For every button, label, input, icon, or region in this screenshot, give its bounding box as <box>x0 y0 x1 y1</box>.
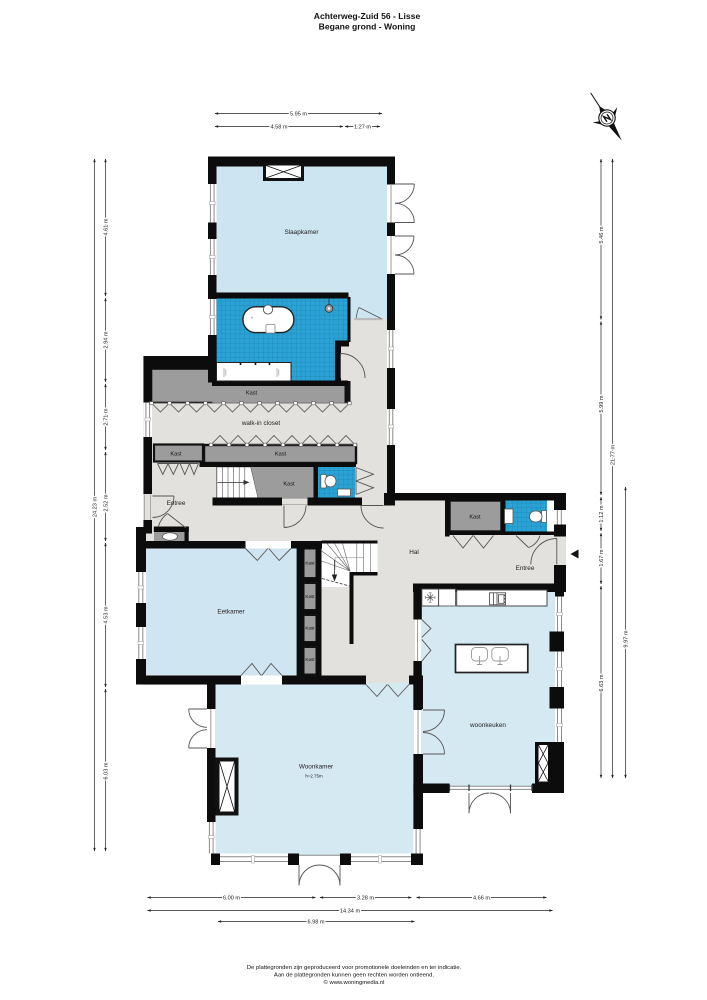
svg-text:Achterweg-Zuid 56 - Lisse: Achterweg-Zuid 56 - Lisse <box>314 11 421 21</box>
svg-text:Kast: Kast <box>305 561 315 566</box>
svg-text:4.66 m: 4.66 m <box>473 896 490 902</box>
svg-text:Kast: Kast <box>275 452 287 458</box>
svg-text:6.98 m: 6.98 m <box>307 920 324 926</box>
svg-text:Entree: Entree <box>516 565 535 572</box>
svg-text:4.61 m: 4.61 m <box>104 218 110 235</box>
svg-text:9.97 m: 9.97 m <box>624 630 630 647</box>
svg-text:Slaapkamer: Slaapkamer <box>284 229 319 236</box>
svg-text:14.34 m: 14.34 m <box>340 909 361 915</box>
svg-text:2.94 m: 2.94 m <box>104 331 110 348</box>
svg-text:1.12 m: 1.12 m <box>599 505 605 522</box>
svg-text:21.77 m: 21.77 m <box>611 445 617 466</box>
svg-text:6.03 m: 6.03 m <box>104 762 110 779</box>
svg-text:3.28 m: 3.28 m <box>357 896 374 902</box>
svg-text:Entree: Entree <box>167 500 186 507</box>
svg-text:2.71 m: 2.71 m <box>104 408 110 425</box>
svg-text:woonkeuken: woonkeuken <box>469 722 506 729</box>
svg-text:© www.woningmedia.nl: © www.woningmedia.nl <box>324 979 385 986</box>
svg-text:1.67 m: 1.67 m <box>599 549 605 566</box>
svg-text:Kast: Kast <box>305 594 315 599</box>
svg-text:h=2.75m: h=2.75m <box>305 774 323 779</box>
svg-text:4.53 m: 4.53 m <box>104 606 110 623</box>
svg-text:Woonkamer: Woonkamer <box>299 764 334 771</box>
svg-text:1.27 m: 1.27 m <box>354 125 371 131</box>
svg-text:4.58 m: 4.58 m <box>270 125 287 131</box>
svg-text:Kast: Kast <box>283 482 295 488</box>
svg-text:Hal: Hal <box>409 549 419 556</box>
svg-text:Begane grond - Woning: Begane grond - Woning <box>319 22 416 32</box>
svg-text:Kast: Kast <box>469 515 481 521</box>
svg-text:5.95 m: 5.95 m <box>290 112 307 118</box>
svg-text:5.46 m: 5.46 m <box>599 226 605 243</box>
svg-text:Aan de plattegronden kunnen ge: Aan de plattegronden kunnen geen rechten… <box>274 973 435 979</box>
svg-text:2.52 m: 2.52 m <box>104 494 110 511</box>
svg-text:Kast: Kast <box>305 657 315 662</box>
svg-text:Kast: Kast <box>170 452 182 458</box>
svg-text:6.00 m: 6.00 m <box>223 896 240 902</box>
svg-text:walk-in closet: walk-in closet <box>241 420 281 427</box>
svg-text:De plattegronden zijn geproduc: De plattegronden zijn geproduceerd voor … <box>247 965 462 971</box>
svg-text:5.99 m: 5.99 m <box>599 395 605 412</box>
svg-text:Eetkamer: Eetkamer <box>217 609 245 616</box>
svg-text:6.63 m: 6.63 m <box>599 674 605 691</box>
svg-text:24.23 m: 24.23 m <box>93 497 99 518</box>
svg-text:Kast: Kast <box>246 391 258 397</box>
svg-text:Kast: Kast <box>305 626 315 631</box>
